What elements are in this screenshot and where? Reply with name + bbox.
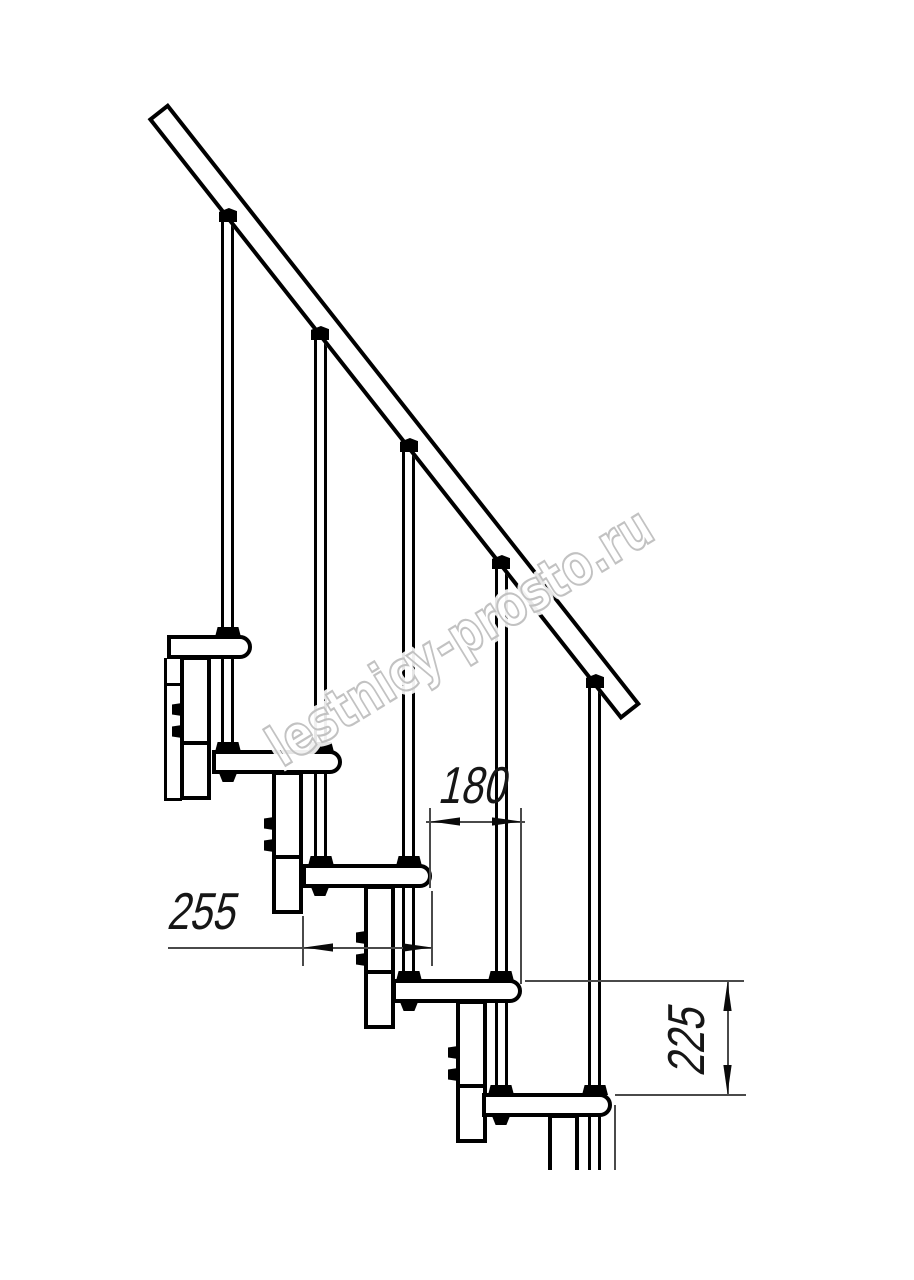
baluster-collar-1: [215, 627, 241, 637]
module-joint-1: [180, 741, 211, 745]
module-tab: [166, 683, 182, 686]
support-module-1: [180, 656, 211, 800]
module-bolt: [264, 817, 274, 830]
support-module-5: [548, 1114, 579, 1170]
baluster-rod-1: [221, 221, 234, 752]
tread-nut-2: [219, 773, 237, 782]
break-line-left-bottom: [164, 798, 182, 801]
dim-255-label: 255: [151, 886, 257, 938]
module-bolt: [448, 1046, 458, 1059]
module-joint-4: [456, 1084, 487, 1088]
baluster-collar-3: [396, 856, 422, 866]
tread-4: [392, 979, 522, 1003]
dim-180-arrow-left: [431, 817, 460, 826]
module-bolt: [172, 725, 182, 738]
baluster-collar-5: [582, 1085, 608, 1095]
dim-255-extension-left: [302, 916, 304, 966]
break-line-left: [164, 658, 167, 801]
dim-225-extension-bottom: [615, 1094, 746, 1096]
dim-180-extension-left: [429, 808, 431, 888]
baluster-foot-3: [308, 856, 334, 866]
staircase-drawing: 180 255 225 lestnicy-prosto.ru lestnicy-…: [0, 0, 914, 1280]
module-bolt: [356, 953, 366, 966]
baluster-foot-2: [215, 742, 241, 752]
baluster-foot-4: [396, 971, 422, 981]
break-line-bottom-right: [614, 1105, 616, 1170]
baluster-collar-2: [308, 742, 334, 752]
tread-nut-5: [492, 1116, 510, 1125]
support-module-4: [456, 1000, 487, 1143]
baluster-rod-4: [495, 568, 508, 1095]
dim-255-arrow-right: [403, 943, 432, 952]
tread-nut-4: [400, 1002, 418, 1011]
dim-225-arrow-down: [723, 1065, 732, 1094]
dim-225-extension-top: [525, 980, 744, 982]
tread-5: [482, 1093, 612, 1117]
baluster-rod-2: [314, 339, 327, 866]
tread-3: [302, 864, 432, 888]
dim-180-extension-right: [520, 808, 522, 984]
module-joint-3: [364, 970, 395, 974]
module-bolt: [356, 931, 366, 944]
dim-255-arrow-left: [304, 943, 333, 952]
baluster-collar-4: [488, 971, 514, 981]
support-module-3: [364, 885, 395, 1029]
tread-nut-3: [311, 887, 329, 896]
tread-1: [167, 635, 252, 659]
baluster-rod-3: [402, 451, 415, 981]
baluster-foot-5: [488, 1085, 514, 1095]
module-bolt: [264, 839, 274, 852]
dim-225-label: 225: [661, 986, 713, 1092]
dim-255-extension-right: [431, 891, 433, 966]
module-bolt: [448, 1068, 458, 1081]
support-module-2: [272, 771, 303, 914]
dim-255-line: [168, 947, 433, 949]
module-bolt: [172, 703, 182, 716]
module-joint-2: [272, 855, 303, 859]
dim-225-arrow-up: [723, 982, 732, 1011]
dim-180-label: 180: [422, 760, 528, 812]
tread-2: [212, 750, 342, 774]
